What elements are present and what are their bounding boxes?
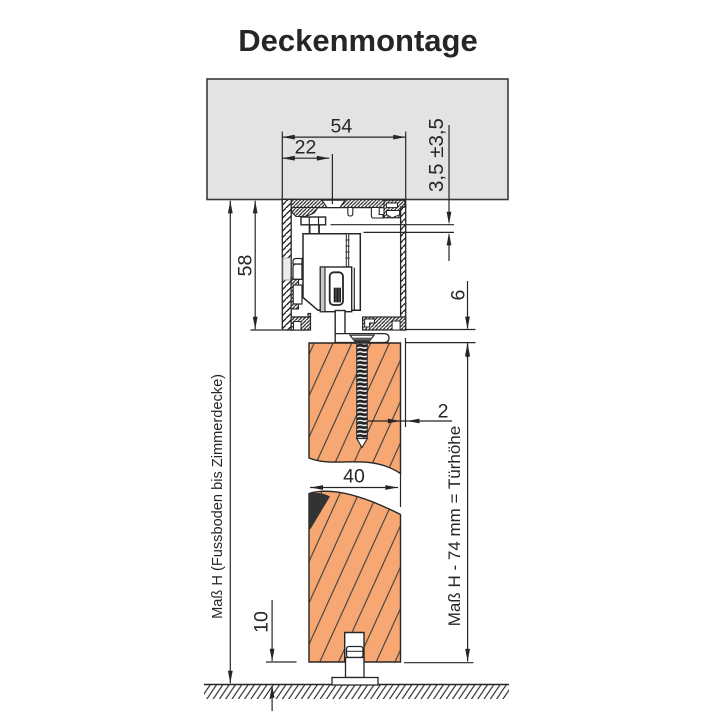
svg-text:3,5 ±3,5: 3,5 ±3,5 (425, 118, 448, 192)
svg-text:10: 10 (251, 611, 273, 633)
svg-text:2: 2 (438, 401, 449, 423)
svg-text:58: 58 (235, 255, 257, 277)
svg-text:6: 6 (448, 290, 470, 301)
svg-text:22: 22 (295, 137, 317, 159)
svg-text:Maß H (Fussboden bis Zimmerdec: Maß H (Fussboden bis Zimmerdecke) (210, 374, 226, 619)
svg-text:Deckenmontage: Deckenmontage (238, 23, 477, 58)
svg-text:54: 54 (331, 116, 353, 138)
svg-text:40: 40 (343, 466, 365, 488)
svg-text:Maß H - 74 mm = Türhöhe: Maß H - 74 mm = Türhöhe (445, 426, 464, 626)
